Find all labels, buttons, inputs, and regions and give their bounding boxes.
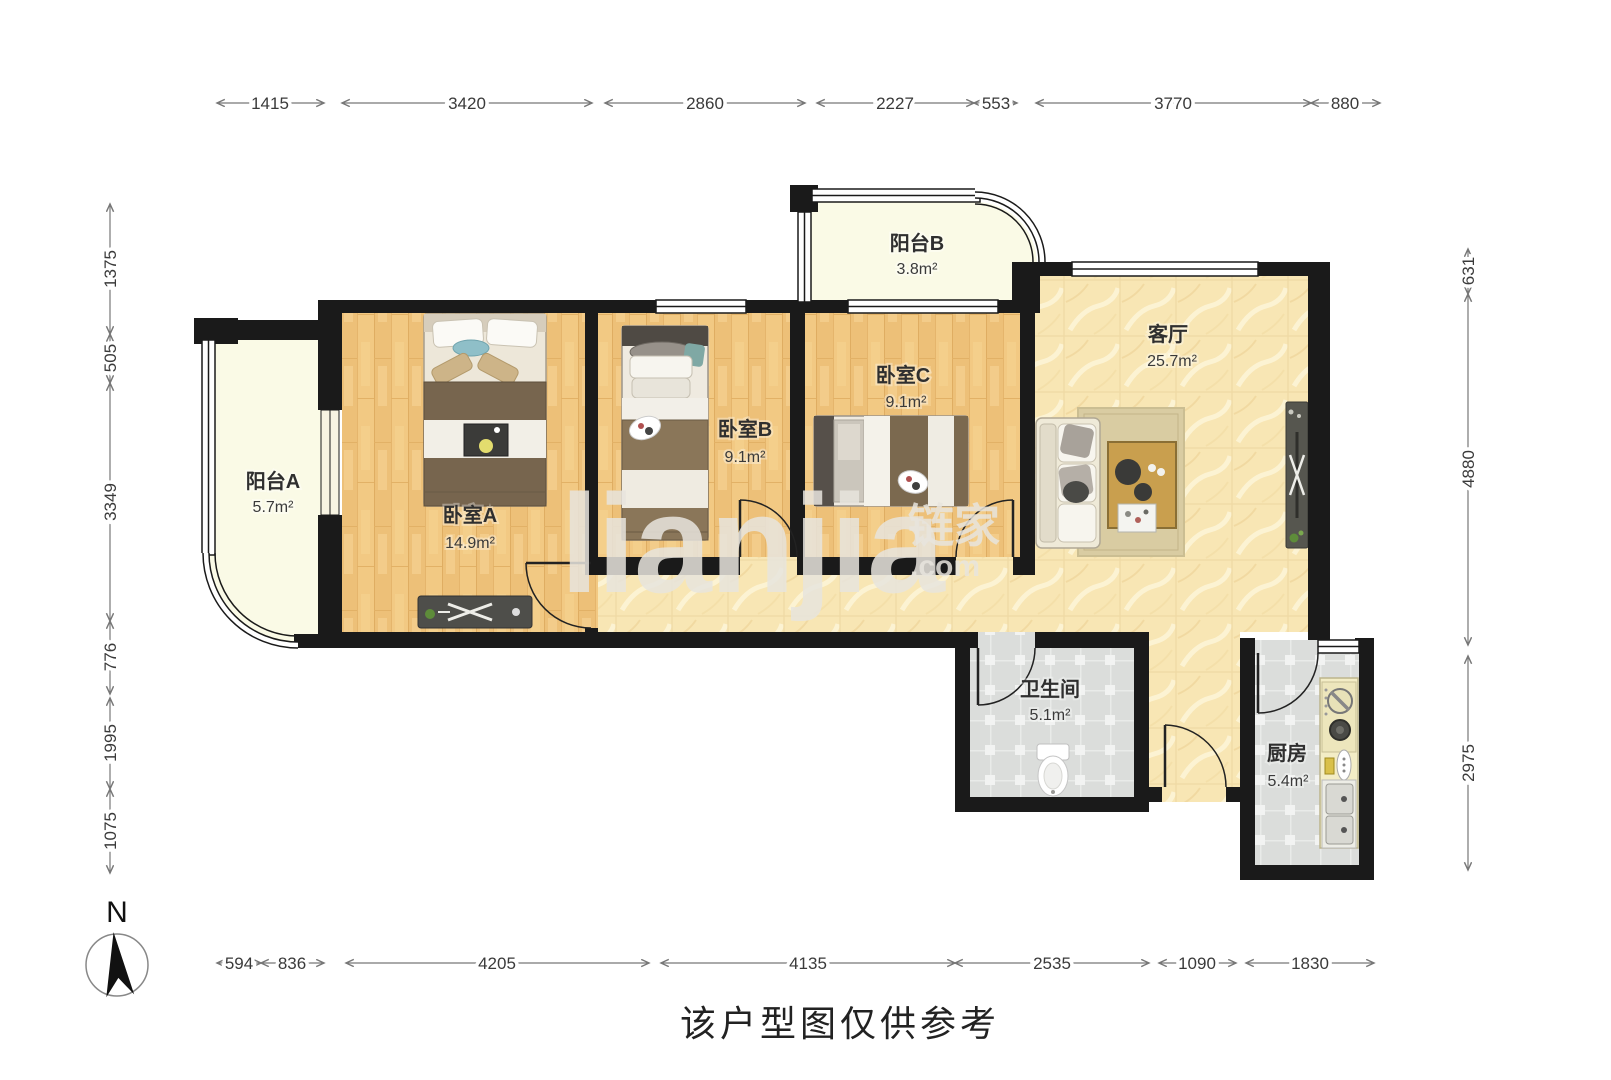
living-room-area: 25.7m² [1147,353,1197,370]
bedroom-b-label: 卧室B [718,417,772,441]
bedroom-a-area: 14.9m² [445,535,495,552]
dim-left-5: 1075 [101,812,120,850]
dim-left-3: 776 [101,643,120,671]
kitchen-counter [1320,678,1358,848]
floorplan-drawing: 阳台A 5.7m² 卧室A 14.9m² 卧室B 9.1m² 卧室C 9.1m²… [0,0,1611,1080]
dim-right-1: 4880 [1459,450,1478,488]
watermark-com: .com [910,550,980,583]
bed-double-bedroom-a [424,314,546,506]
watermark: lianjia 链家 .com [560,465,1000,622]
bedroom-a-label: 卧室A [443,503,497,527]
north-needle [100,931,135,998]
dim-right-0: 631 [1459,257,1478,285]
caption: 该户型图仅供参考 [680,1004,1000,1045]
dim-top-3: 2227 [876,94,914,113]
dim-bottom-2: 4205 [478,954,516,973]
living-room-label: 客厅 [1147,322,1188,346]
balcony-a-area: 5.7m² [253,499,295,516]
dim-left-1: 505 [101,344,120,372]
kitchen-area: 5.4m² [1268,773,1310,790]
sofa [1036,418,1100,548]
kitchen-window [1318,640,1359,653]
balcony-b-area: 3.8m² [897,261,939,278]
balcony-a-label: 阳台A [246,469,300,493]
dim-top-4: 553 [982,94,1010,113]
floorplan-page: 阳台A 5.7m² 卧室A 14.9m² 卧室B 9.1m² 卧室C 9.1m²… [0,0,1611,1080]
balcony-b-label: 阳台B [890,231,944,255]
dim-bottom-5: 1090 [1178,954,1216,973]
dim-left-2: 3349 [101,483,120,521]
coffee-table [1108,442,1176,532]
tv-cabinet-bedroom-a [418,596,532,628]
bathroom-area: 5.1m² [1030,707,1072,724]
toilet [1037,744,1069,796]
bathroom-label: 卫生间 [1020,678,1080,701]
bedroom-b-area: 9.1m² [725,449,767,466]
bedroom-c-area: 9.1m² [886,394,928,411]
watermark-cn: 链家 [908,500,1000,552]
north-label: N [106,896,128,929]
kitchen-label: 厨房 [1267,741,1307,765]
balcony-b-top-window [812,189,980,202]
dim-right-2: 2975 [1459,744,1478,782]
dim-bottom-4: 2535 [1033,954,1071,973]
dim-left-4: 1995 [101,724,120,762]
balcony-a-bedroom-a-opening [321,410,339,515]
living-room-window [1072,262,1258,276]
dim-bottom-0: 594 [225,954,253,973]
balcony-b-side-window [798,212,811,302]
bedroom-c-balcony-window [848,300,998,313]
bedroom-b-window [656,300,746,313]
dim-bottom-6: 1830 [1291,954,1329,973]
tv-panel [1286,402,1308,548]
dim-top-1: 3420 [448,94,486,113]
dim-top-2: 2860 [686,94,724,113]
dim-top-0: 1415 [251,94,289,113]
dim-top-6: 880 [1331,94,1359,113]
watermark-latin: lianjia [560,465,946,622]
dim-bottom-1: 836 [278,954,306,973]
bedroom-c-label: 卧室C [876,363,930,387]
dim-bottom-3: 4135 [789,954,827,973]
dim-top-5: 3770 [1154,94,1192,113]
balcony-a-side-window [202,340,215,555]
dim-left-0: 1375 [101,250,120,288]
corridor-floor [1149,632,1240,802]
north-arrow: N [86,896,148,997]
